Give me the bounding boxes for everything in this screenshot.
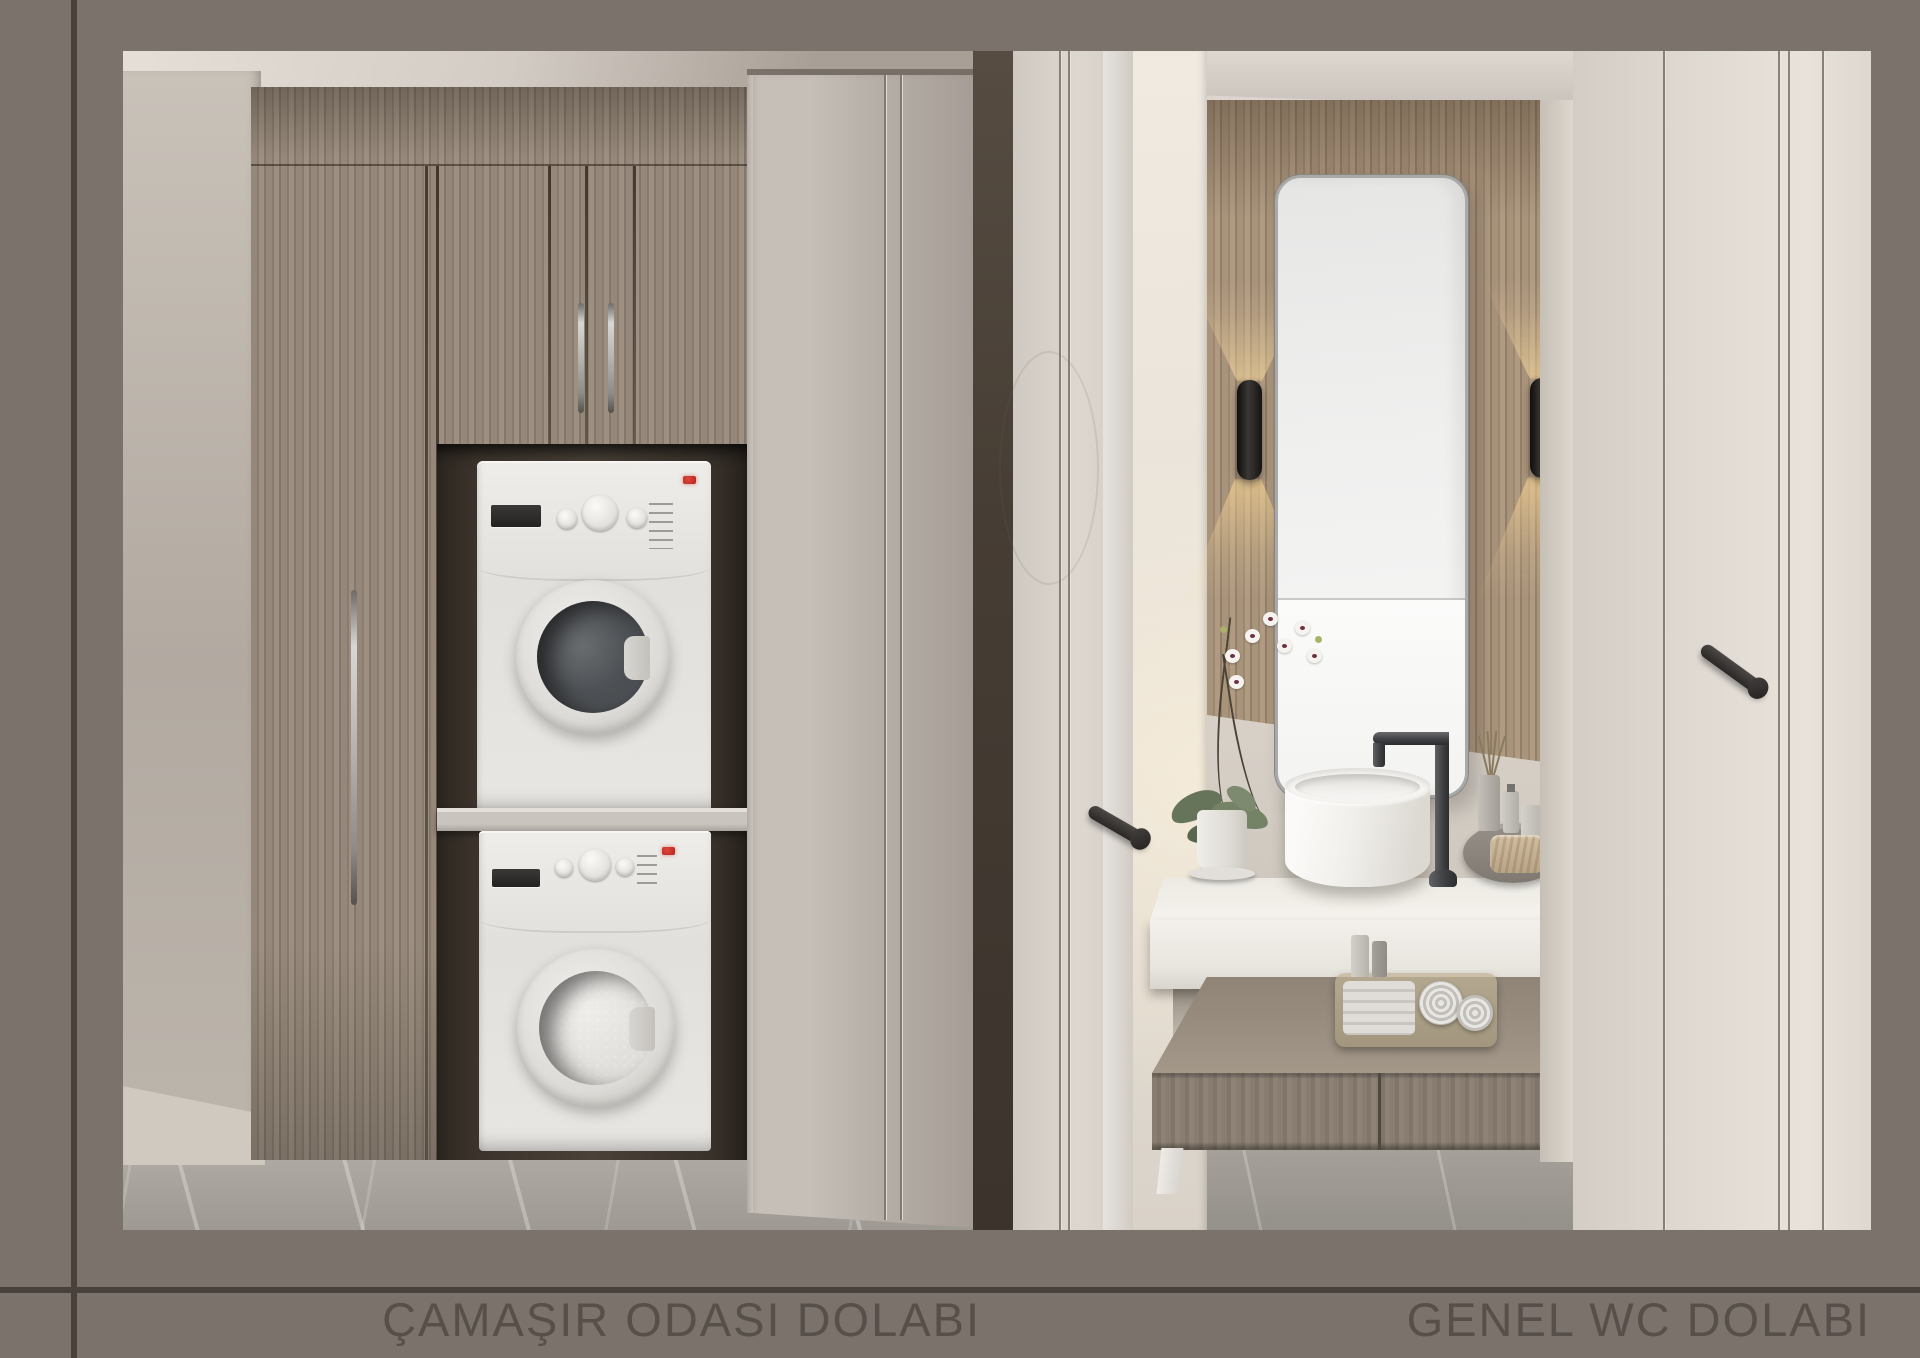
detergent-drawer: [491, 505, 541, 527]
door-arc-detail: [999, 351, 1099, 585]
door-latch: [624, 636, 650, 680]
towel-roll: [1419, 981, 1463, 1025]
door-latch: [629, 1007, 655, 1051]
wardrobe-handle: [351, 590, 357, 905]
orchid-bud: [1220, 626, 1227, 633]
washing-machine: [477, 461, 711, 811]
dryer-machine: [479, 831, 711, 1151]
sink-basin: [1295, 774, 1420, 800]
drawer-seam: [1378, 1073, 1381, 1150]
orchid-flower: [1307, 649, 1322, 663]
toiletry-bottle: [1351, 935, 1369, 977]
faucet-base: [1429, 869, 1457, 887]
washer-knob: [627, 508, 647, 528]
left-wall: [123, 71, 261, 1146]
status-led: [662, 847, 675, 855]
washer-program-knob: [582, 495, 618, 531]
presentation-board: ÇAMAŞIR ODASI DOLABI GENEL WC DOLABI: [0, 0, 1920, 1358]
mirror: [1275, 175, 1468, 798]
dryer-door: [517, 949, 675, 1107]
faucet-spout: [1373, 743, 1385, 767]
door-groove: [884, 75, 886, 1220]
niche-side-frame: [710, 444, 747, 1160]
dryer-knob: [555, 859, 573, 877]
status-led: [683, 476, 696, 484]
towel-roll: [1457, 995, 1493, 1031]
orchid-flower: [1229, 675, 1244, 689]
upper-cabinet-seam: [585, 166, 588, 444]
upper-cabinet-seam: [548, 166, 551, 444]
toiletry-bottle: [1503, 791, 1519, 833]
orchid-flower: [1295, 621, 1310, 635]
reed-diffuser: [1478, 775, 1500, 831]
door-head-shadow: [747, 69, 973, 76]
wall-sconce-left: [1237, 380, 1262, 480]
dryer-program-knob: [579, 849, 611, 881]
door-groove: [900, 75, 902, 1220]
washer-knob: [557, 509, 577, 529]
orchid-flower: [1245, 629, 1260, 643]
upper-cabinet-seam: [633, 166, 636, 444]
washer-control-panel: [477, 461, 711, 581]
orchid-flower: [1263, 612, 1278, 626]
door-groove: [1068, 51, 1070, 1230]
orchid-flower: [1277, 639, 1292, 653]
program-label-list: [637, 855, 657, 891]
upper-cabinet-handle: [608, 303, 614, 413]
orchid-pot: [1197, 810, 1247, 872]
wardrobe-door-seam: [425, 166, 428, 1160]
vertical-rule: [71, 0, 77, 1358]
pot-saucer: [1189, 867, 1255, 880]
program-label-list: [649, 503, 673, 549]
dryer-knob: [616, 858, 634, 876]
detergent-drawer: [492, 869, 540, 887]
wardrobe-top-seam: [251, 164, 747, 166]
stacking-shelf: [437, 808, 747, 831]
folded-towel: [1343, 981, 1415, 1035]
perfume-bottle: [1521, 805, 1541, 837]
door-frame-dark: [973, 51, 1013, 1230]
dryer-control-panel: [479, 831, 711, 933]
faucet: [1435, 732, 1449, 873]
caption-laundry: ÇAMAŞIR ODASI DOLABI: [123, 1296, 981, 1343]
wc-render-panel: [973, 51, 1871, 1230]
upper-cabinet-handle: [578, 303, 584, 413]
door-groove: [1778, 51, 1780, 1230]
soap-bar: [1490, 835, 1544, 873]
door-groove: [1822, 51, 1824, 1230]
wc-door-right: [1573, 51, 1871, 1230]
caption-wc: GENEL WC DOLABI: [973, 1296, 1871, 1343]
laundry-room-door: [747, 75, 973, 1230]
orchid-flower: [1225, 649, 1240, 663]
wall-corner: [1540, 100, 1573, 1162]
door-groove: [1788, 51, 1790, 1230]
orchid-bud: [1315, 636, 1322, 643]
door-highlight: [1103, 51, 1131, 1230]
door-groove: [1663, 51, 1665, 1230]
laundry-render-panel: [123, 51, 973, 1230]
toiletry-bottle: [1372, 941, 1387, 977]
door-groove: [1059, 51, 1061, 1230]
washer-door: [516, 580, 670, 734]
